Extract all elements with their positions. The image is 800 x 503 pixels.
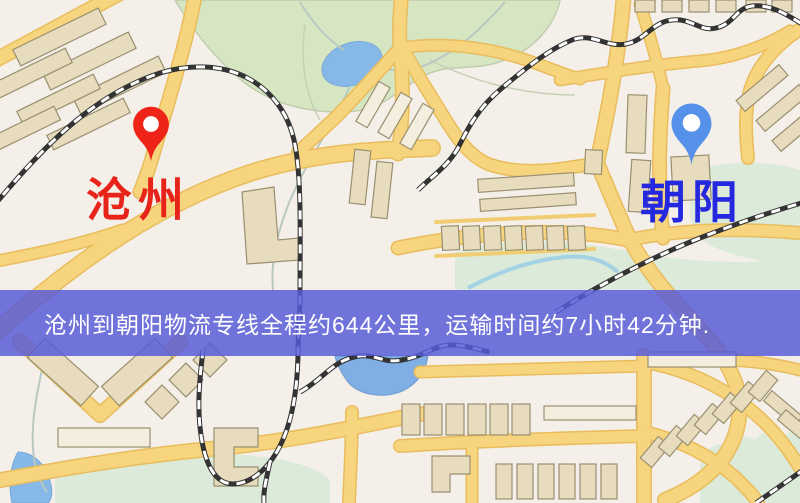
map-container: 沧州 朝阳 沧州到朝阳物流专线全程约644公里，运输时间约7小时42分钟. (0, 0, 800, 503)
origin-pin[interactable] (130, 102, 172, 166)
origin-city-label: 沧州 (86, 177, 190, 223)
pin-hole (683, 114, 701, 132)
pin-body (672, 103, 712, 164)
destination-pin[interactable] (668, 99, 715, 169)
pin-hole (143, 116, 159, 132)
route-info-banner: 沧州到朝阳物流专线全程约644公里，运输时间约7小时42分钟. (0, 290, 800, 356)
destination-pin-icon (668, 99, 715, 169)
route-info-text: 沧州到朝阳物流专线全程约644公里，运输时间约7小时42分钟. (44, 306, 710, 340)
pin-body (133, 107, 169, 162)
destination-city-label: 朝阳 (640, 179, 744, 225)
origin-pin-icon (130, 102, 172, 166)
map-artwork (0, 0, 800, 503)
